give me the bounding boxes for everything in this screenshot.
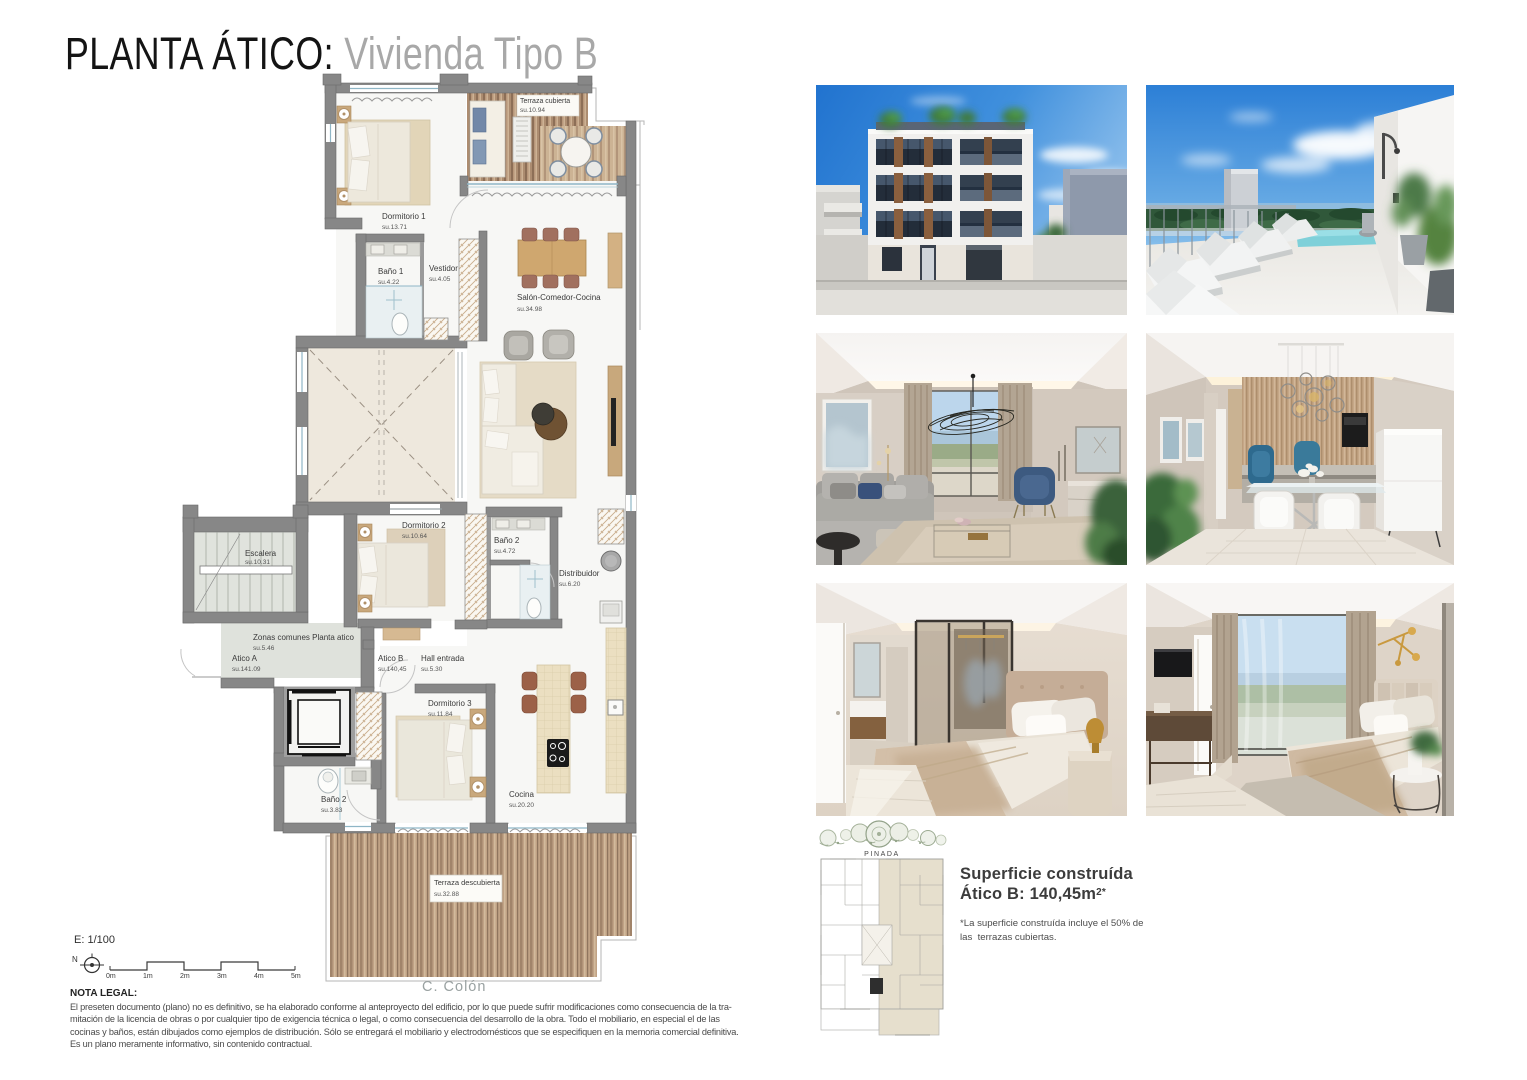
svg-text:su.20.20: su.20.20	[509, 802, 534, 809]
svg-text:su.10.94: su.10.94	[520, 107, 545, 114]
svg-text:4m: 4m	[254, 973, 264, 978]
svg-text:Dormitorio 2: Dormitorio 2	[402, 521, 446, 530]
svg-text:su.141.09: su.141.09	[232, 666, 261, 673]
svg-text:su.13.71: su.13.71	[382, 224, 407, 231]
svg-text:Atico B: Atico B	[378, 654, 403, 663]
svg-text:Atico A: Atico A	[232, 654, 258, 663]
svg-text:Distribuidor: Distribuidor	[559, 569, 600, 578]
svg-text:PINADA: PINADA	[864, 851, 900, 858]
svg-text:su.32.88: su.32.88	[434, 891, 459, 898]
svg-text:Salón-Comedor-Cocina: Salón-Comedor-Cocina	[517, 293, 601, 302]
svg-text:su.5.46: su.5.46	[253, 645, 275, 652]
svg-text:Baño 2: Baño 2	[494, 536, 520, 545]
svg-text:Cocina: Cocina	[509, 790, 534, 799]
svg-text:su.3.83: su.3.83	[321, 807, 343, 814]
svg-text:Terraza descubierta: Terraza descubierta	[434, 878, 501, 887]
svg-text:su.140,45: su.140,45	[378, 666, 407, 673]
svg-text:0m: 0m	[106, 973, 116, 978]
svg-text:Zonas comunes Planta atico: Zonas comunes Planta atico	[253, 633, 354, 642]
svg-text:Terraza cubierta: Terraza cubierta	[520, 98, 570, 105]
svg-text:su.11.84: su.11.84	[428, 711, 453, 718]
svg-text:1m: 1m	[143, 973, 153, 978]
svg-text:Baño 1: Baño 1	[378, 267, 404, 276]
svg-text:su.34.98: su.34.98	[517, 306, 542, 313]
svg-text:su.10.64: su.10.64	[402, 533, 427, 540]
svg-text:Baño 2: Baño 2	[321, 795, 347, 804]
svg-text:su.4.22: su.4.22	[378, 279, 400, 286]
svg-text:Hall entrada: Hall entrada	[421, 654, 465, 663]
svg-text:Dormitorio 3: Dormitorio 3	[428, 699, 472, 708]
svg-text:su.4.05: su.4.05	[429, 276, 451, 283]
svg-text:N: N	[72, 955, 78, 964]
svg-text:su.10.31: su.10.31	[245, 559, 270, 566]
svg-text:Vestidor: Vestidor	[429, 264, 458, 273]
svg-text:2m: 2m	[180, 973, 190, 978]
svg-text:Escalera: Escalera	[245, 549, 277, 558]
svg-text:su.4.72: su.4.72	[494, 548, 516, 555]
svg-text:Dormitorio 1: Dormitorio 1	[382, 212, 426, 221]
svg-text:su.5.30: su.5.30	[421, 666, 443, 673]
svg-text:3m: 3m	[217, 973, 227, 978]
svg-text:su.6.20: su.6.20	[559, 581, 581, 588]
svg-text:5m: 5m	[291, 973, 301, 978]
